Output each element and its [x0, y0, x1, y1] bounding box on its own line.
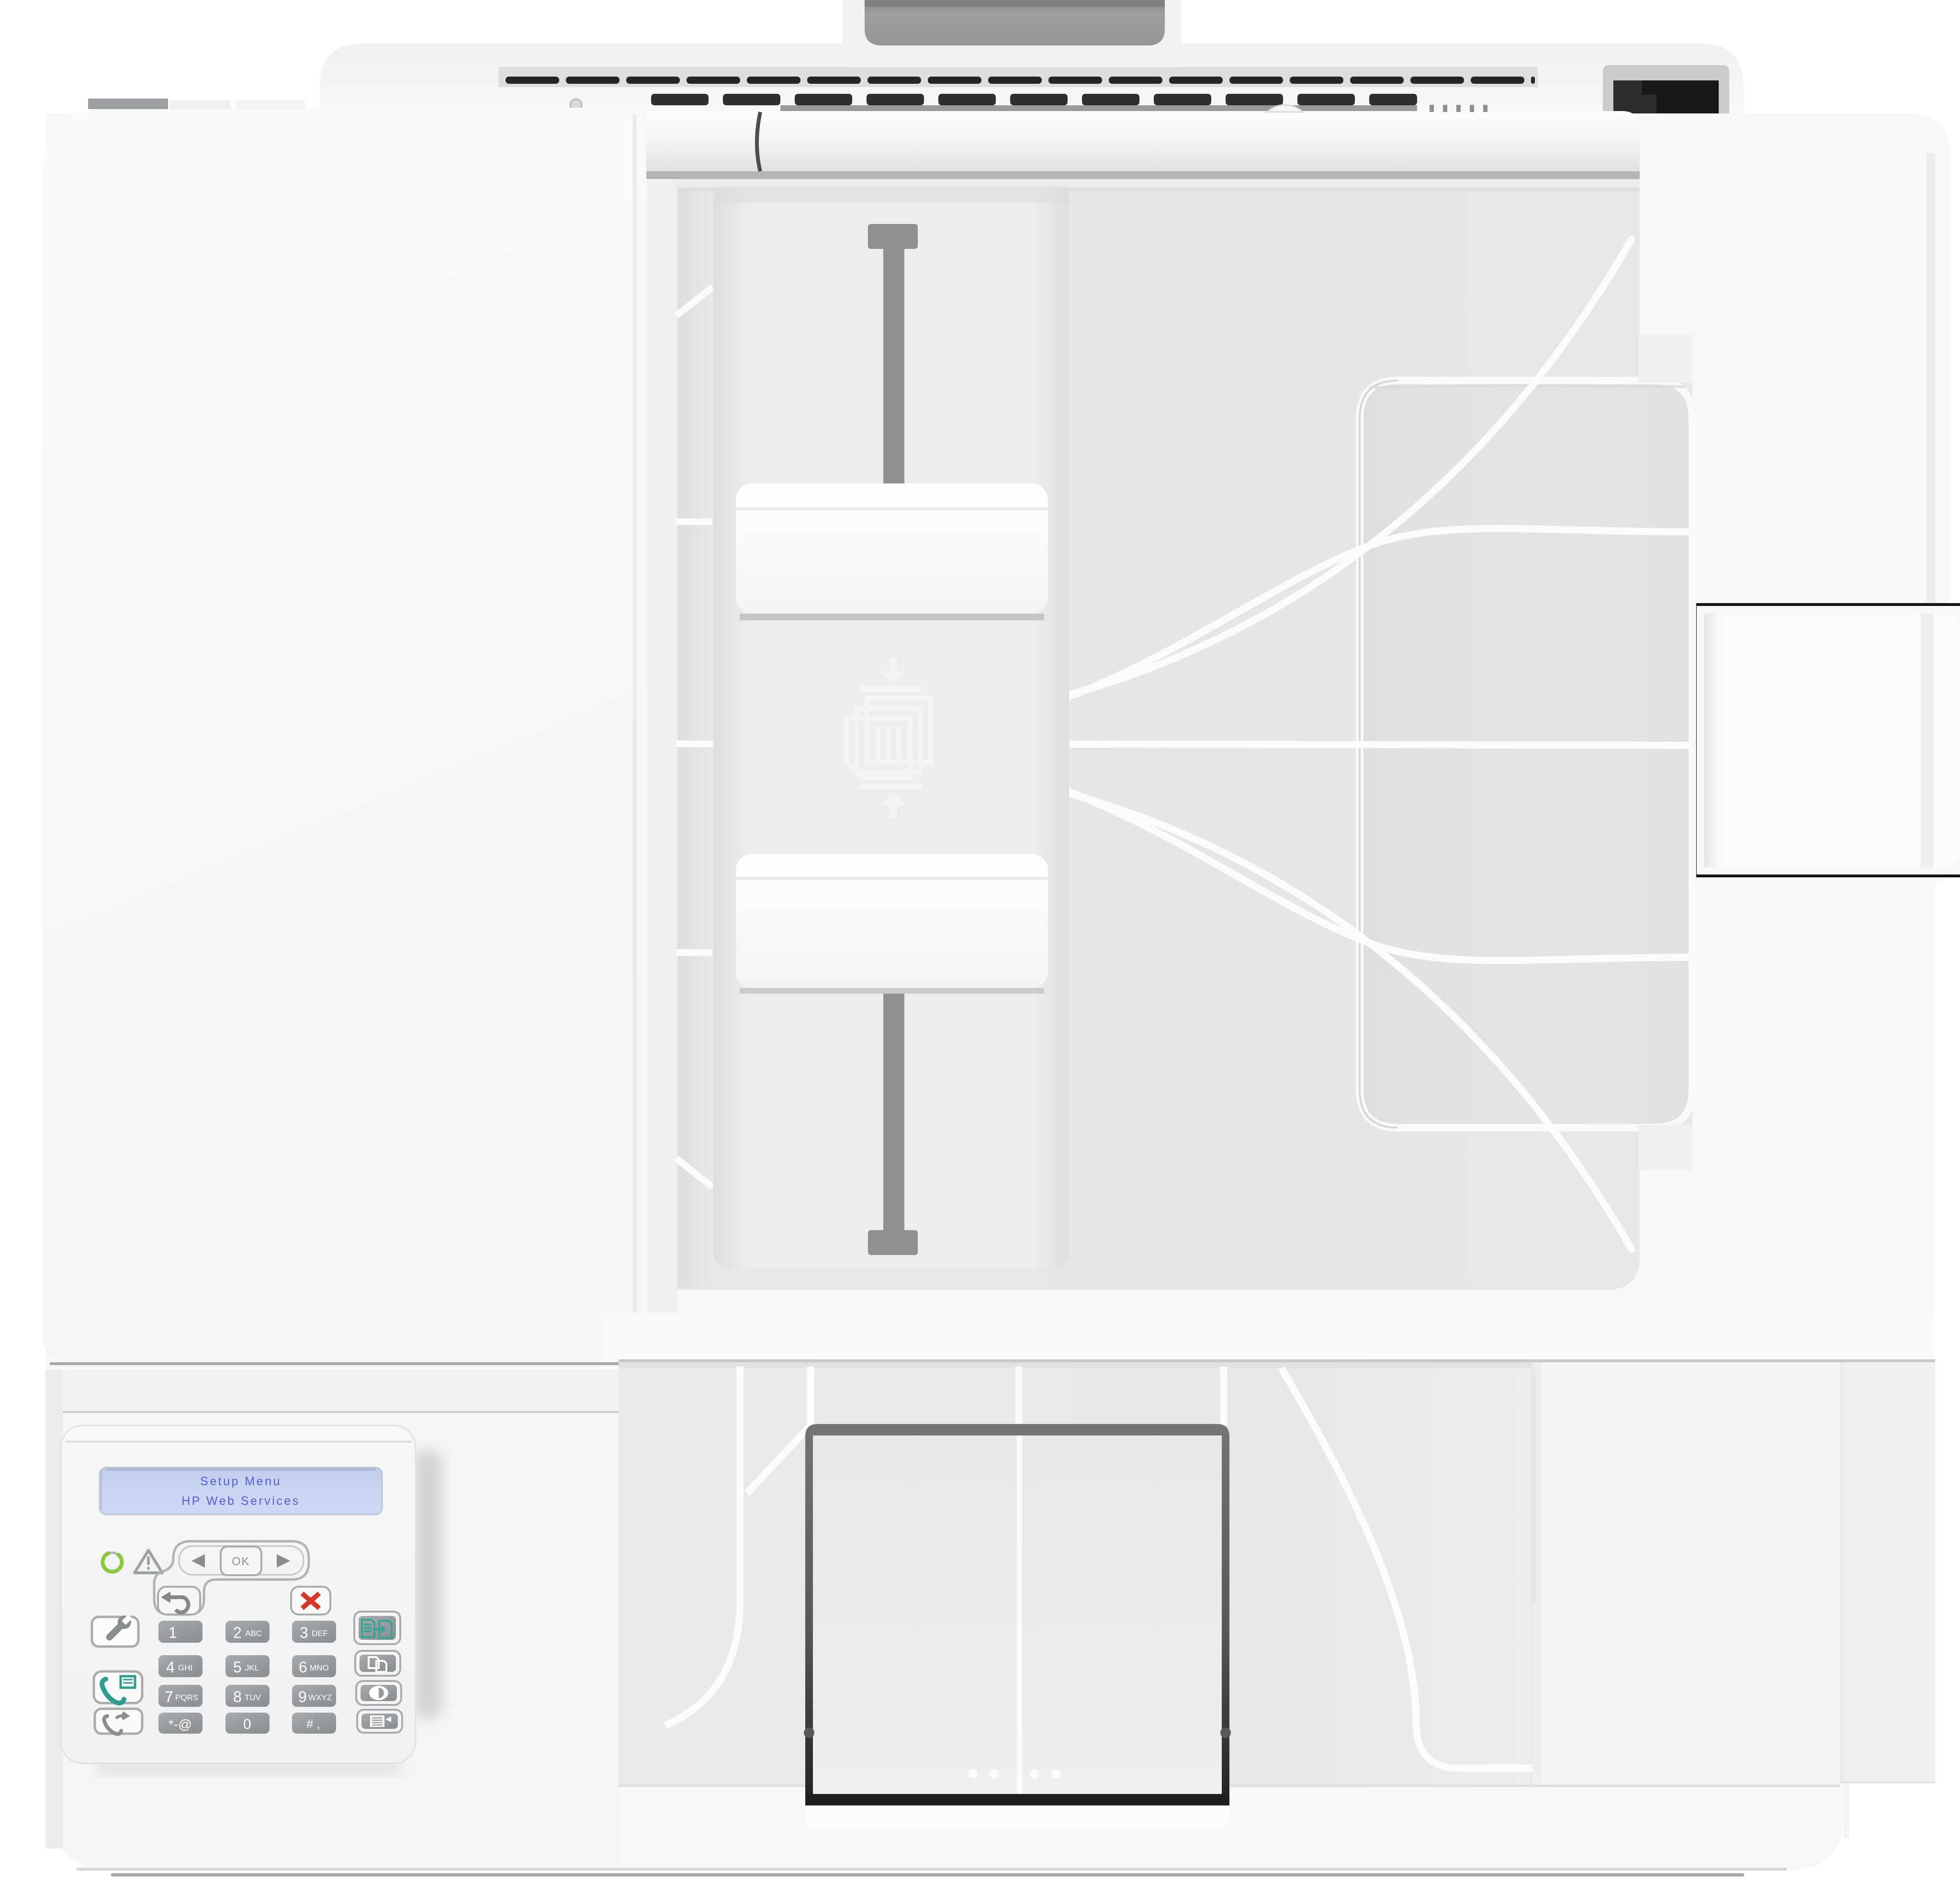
svg-text:5: 5: [233, 1659, 242, 1676]
svg-text:PQRS: PQRS: [175, 1693, 198, 1702]
svg-text:Setup Menu: Setup Menu: [200, 1475, 282, 1488]
svg-text:GHI: GHI: [178, 1663, 192, 1672]
svg-text:7: 7: [165, 1688, 173, 1705]
svg-text:MNO: MNO: [310, 1663, 329, 1672]
svg-text:HP Web Services: HP Web Services: [181, 1494, 300, 1508]
svg-text:6: 6: [299, 1659, 307, 1676]
svg-text:WXYZ: WXYZ: [308, 1693, 332, 1702]
svg-text:ABC: ABC: [245, 1629, 262, 1638]
svg-text:3: 3: [300, 1624, 308, 1641]
svg-text:OK: OK: [232, 1555, 250, 1568]
svg-text:JKL: JKL: [245, 1663, 259, 1672]
svg-text:9: 9: [298, 1688, 307, 1705]
svg-text:0: 0: [243, 1716, 251, 1732]
svg-text:# ,: # ,: [306, 1716, 320, 1731]
svg-text:TUV: TUV: [245, 1693, 261, 1702]
svg-text:8: 8: [233, 1688, 242, 1705]
svg-text:*-@: *-@: [169, 1717, 192, 1732]
svg-text:DEF: DEF: [312, 1629, 328, 1638]
svg-text:2: 2: [233, 1624, 242, 1641]
svg-text:4: 4: [166, 1659, 175, 1676]
svg-text:1: 1: [169, 1624, 177, 1641]
